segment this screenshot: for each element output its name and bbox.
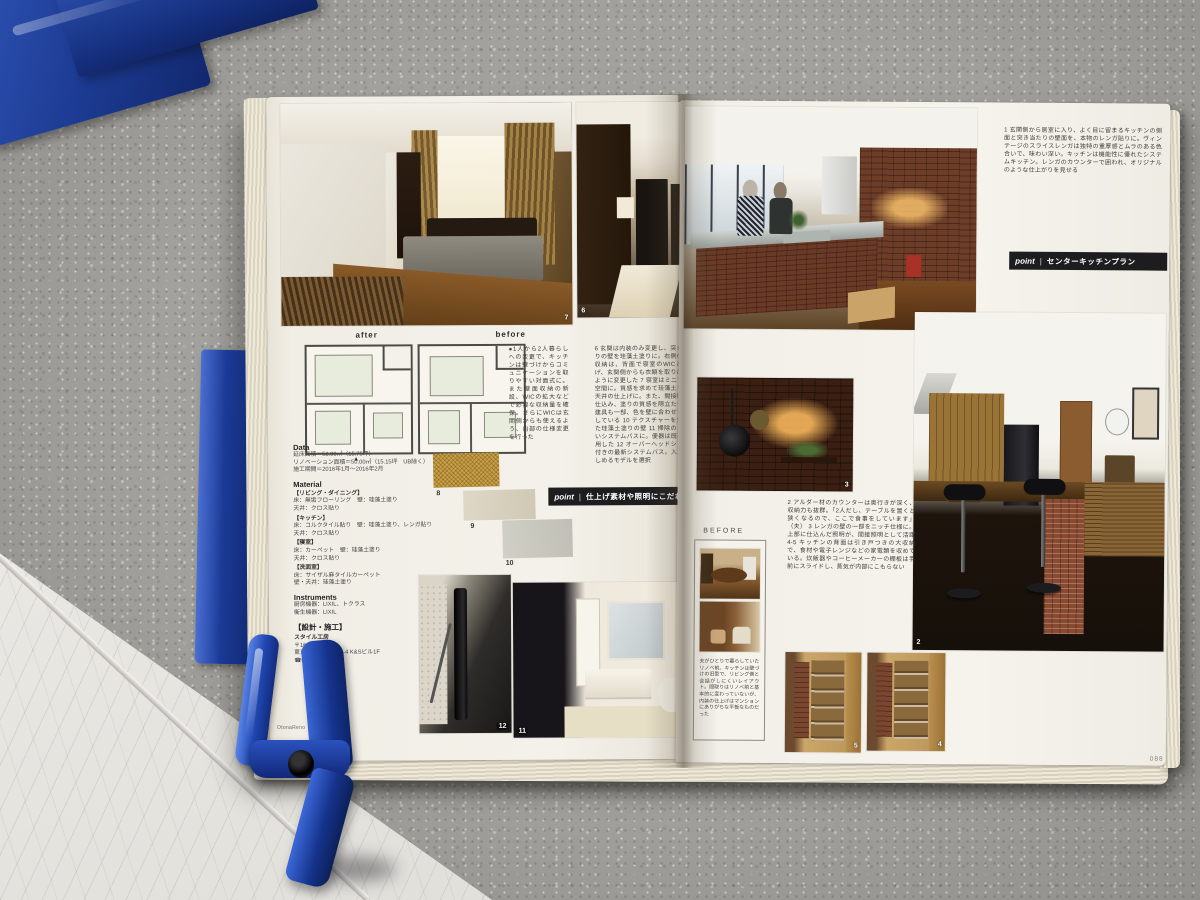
plan-before-label: before — [495, 330, 525, 339]
kitchen-plant — [790, 209, 808, 231]
stool-seat — [1024, 479, 1066, 495]
wall-clock — [1105, 408, 1130, 436]
hallway-door — [636, 179, 668, 269]
swatch-number-10: 10 — [506, 560, 514, 567]
stool-stem — [1041, 495, 1046, 567]
point-label: point — [1015, 256, 1035, 265]
plan-wall — [307, 402, 411, 405]
swatch-plaster-gray — [502, 519, 573, 559]
magazine-logo: OtonaReno — [277, 725, 305, 731]
before-shelf — [701, 553, 713, 583]
photo-brick-niche: 3 — [697, 377, 854, 491]
plan-room-bedroom — [428, 410, 460, 444]
plan-wall — [470, 402, 472, 452]
plan-room-ldk — [315, 355, 373, 397]
photo-hallway: 6 — [576, 102, 695, 318]
before-bag — [710, 630, 726, 644]
niche-pan — [750, 409, 769, 429]
plan-room-bedroom — [315, 411, 351, 445]
point-title: センターキッチンプラン — [1047, 255, 1136, 267]
bedroom-striped-spread — [281, 277, 403, 326]
shower-column — [454, 588, 468, 721]
photo-before-dining — [700, 548, 760, 598]
person-husband — [737, 195, 764, 235]
niche-hook — [731, 389, 733, 427]
magazine-photo-scene: 7 6 after ▲ before — [0, 0, 1200, 900]
photo-number-6: 6 — [581, 307, 585, 314]
before-box: 夫がひとりで暮らしていたリノベ前。キッチンは壁づけの旧型で、リビング側と会話がし… — [693, 539, 766, 740]
photo-number-3: 3 — [845, 481, 849, 488]
swatch-cork-tile — [433, 452, 500, 487]
red-stool — [906, 254, 921, 276]
caption-paragraph-1: 1 玄関側から居室に入り、よく目に留まるキッチンの側面と突き当たりの壁面を、本物… — [1003, 127, 1162, 220]
right-page: 1 1 玄関側から居室に入り、よく目に留まるキッチンの側面と突き当たりの壁面を、… — [676, 100, 1171, 765]
niche-kettle — [719, 425, 750, 457]
plan-notch — [383, 346, 411, 370]
material-line: 天井：クロス貼り — [293, 505, 443, 513]
photo-bedroom: 7 — [280, 102, 572, 326]
intro-paragraph: ●1人から2人暮らしへの変更で、キッチンは壁づけからコミュニケーションを取りやす… — [509, 346, 570, 464]
photo-pantry-open: 5 — [785, 652, 862, 753]
pantry-shelves — [893, 661, 928, 740]
stool-stem — [961, 500, 966, 572]
material-heading: Material — [293, 479, 443, 489]
point-title: 仕上げ素材や照明にこだわる — [586, 490, 691, 502]
photo-number-11: 11 — [517, 728, 528, 735]
niche-ledge — [781, 457, 837, 462]
photo-number-7: 7 — [565, 315, 569, 322]
pantry-sliding-door — [846, 652, 862, 752]
slatted-sideboard — [1084, 482, 1165, 557]
photo-pantry-open-2: 4 — [867, 653, 946, 752]
swatch-number-9: 9 — [470, 523, 474, 530]
photo-before-room — [699, 601, 759, 651]
bar-stool-left — [941, 484, 988, 604]
stool-base — [947, 588, 981, 598]
photo-washroom: 11 — [513, 582, 695, 738]
wall-art-frame — [1132, 388, 1159, 439]
material-line: 床：コルクタイル貼り 壁：珪藻土塗り、レンガ貼り — [293, 522, 443, 530]
page-number: 088 — [1150, 756, 1164, 763]
photo-number-4: 4 — [938, 741, 942, 748]
before-caption: 夫がひとりで暮らしていたリノベ前。キッチンは壁づけの旧型で、リビング側と会話がし… — [699, 658, 760, 734]
before-round-table — [711, 568, 747, 583]
stool-seat — [944, 484, 986, 500]
data-line: 施工期間＝2016年1月〜2016年2月 — [293, 466, 443, 474]
point-label: point — [554, 492, 574, 501]
photo-number-12: 12 — [497, 723, 509, 730]
swatch-number-8: 8 — [436, 490, 440, 497]
photo-kitchen-counter: 2 — [912, 312, 1165, 652]
kitchen-range-hood — [822, 156, 857, 214]
photo-number-2: 2 — [917, 639, 921, 646]
point-band-right: point | センターキッチンプラン — [1009, 252, 1167, 271]
stool-base — [1027, 583, 1061, 593]
caption-paragraph-2-5: 2 アルダー材のカウンターは奥行きが深く、収納力も抜群。「2人だし、テーブルを置… — [787, 499, 916, 614]
plan-room-bath — [373, 412, 403, 438]
wood-bench — [847, 287, 894, 324]
hallway-floor — [609, 265, 683, 317]
pantry-shelves — [811, 660, 845, 740]
photo-number-5: 5 — [854, 743, 858, 750]
bar-stool-right — [1021, 479, 1068, 599]
plan-after-label: after — [355, 331, 377, 340]
before-chair — [733, 627, 751, 644]
material-line: 天井：クロス貼り — [294, 530, 444, 538]
washroom-vanity — [586, 669, 651, 697]
floorplan-after: ▲ — [305, 344, 414, 455]
swatch-plaster-beige — [463, 489, 536, 521]
pantry-sliding-door — [929, 653, 945, 751]
photo-shower: 12 — [419, 575, 512, 733]
photo-kitchen-main: 1 — [684, 106, 978, 330]
pantry-brick-wall — [876, 662, 892, 737]
washroom-mirror — [607, 601, 666, 661]
point-separator: | — [1040, 256, 1042, 265]
point-separator: | — [579, 492, 581, 501]
hallway-niche — [617, 197, 634, 219]
material-line: 天井：クロス貼り — [294, 555, 444, 563]
clip-pivot-hole — [288, 750, 314, 778]
before-label: BEFORE — [703, 527, 744, 534]
plan-room-ld — [430, 356, 484, 396]
pantry-brick-wall — [794, 662, 810, 738]
